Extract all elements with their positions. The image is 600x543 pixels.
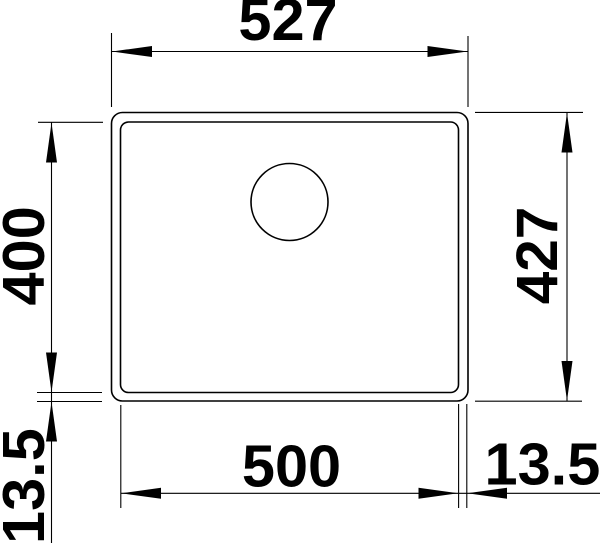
svg-text:13.5: 13.5 [0,428,57,543]
svg-text:427: 427 [505,207,570,305]
svg-text:527: 527 [238,0,337,53]
svg-text:13.5: 13.5 [485,431,600,498]
svg-text:500: 500 [242,433,341,500]
svg-text:400: 400 [0,206,57,305]
